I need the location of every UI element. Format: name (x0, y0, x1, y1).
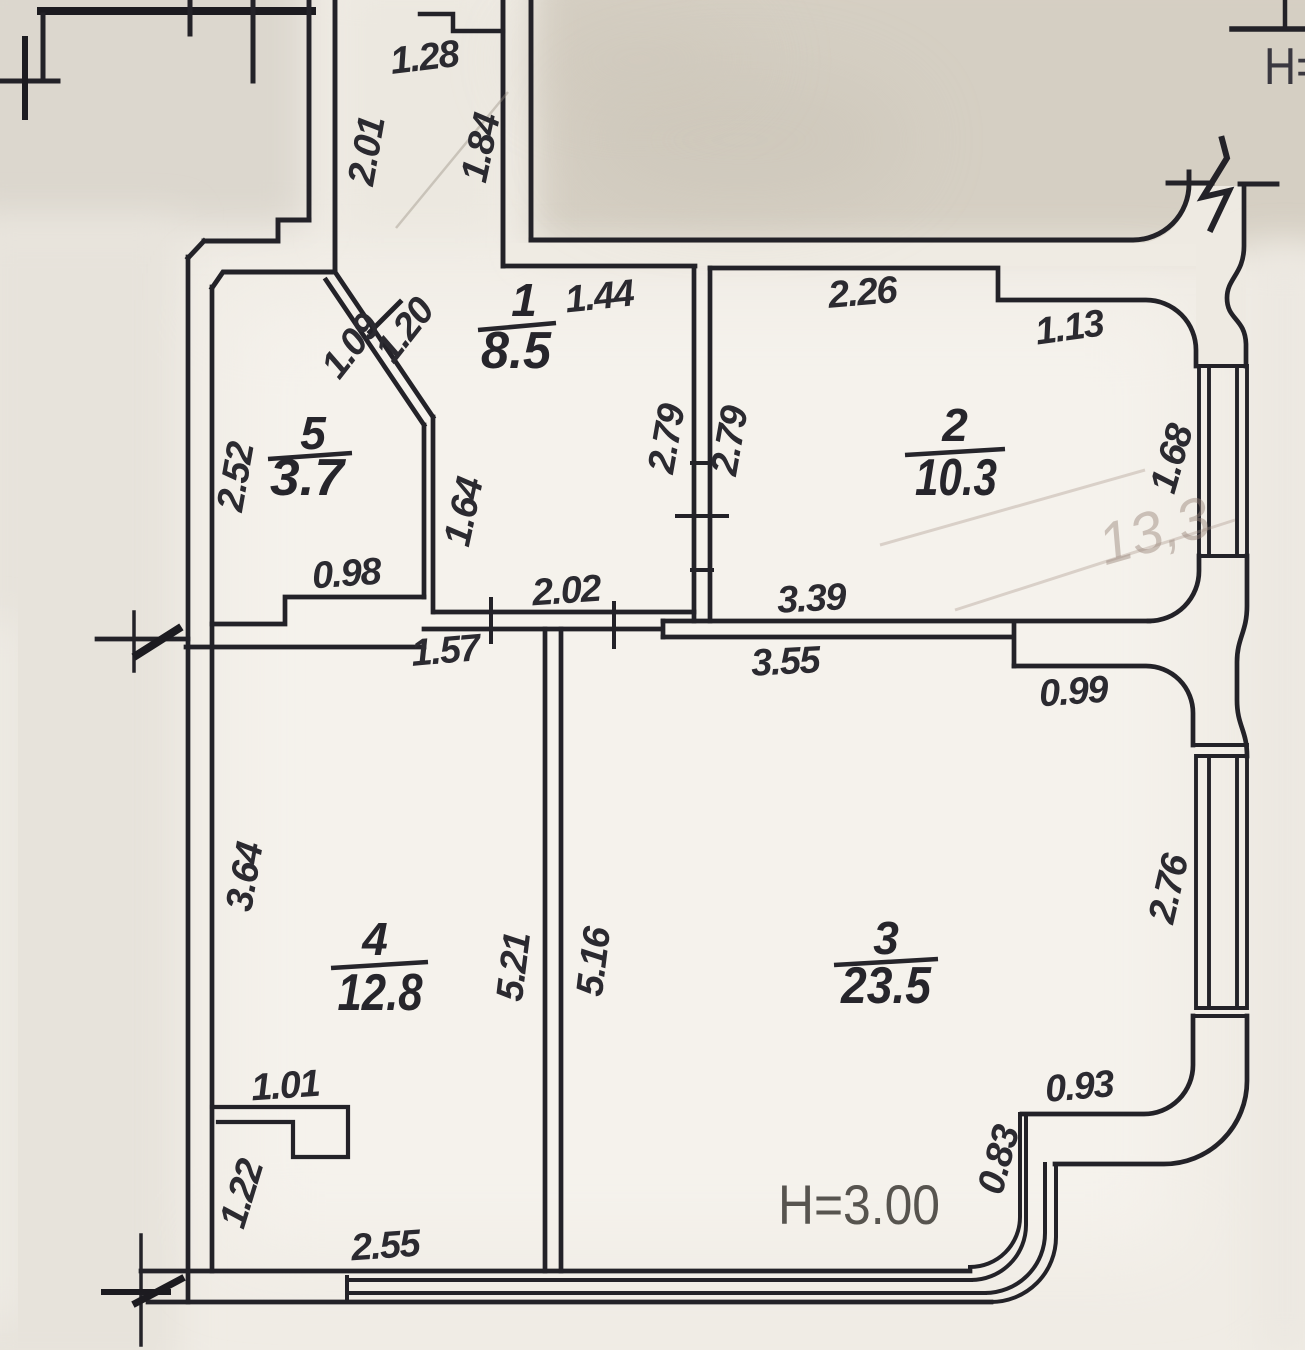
svg-text:2: 2 (941, 399, 968, 451)
svg-text:3.55: 3.55 (750, 639, 822, 685)
svg-text:2.26: 2.26 (825, 269, 900, 317)
svg-text:1.44: 1.44 (563, 272, 636, 321)
svg-text:2.55: 2.55 (349, 1223, 423, 1270)
svg-text:5.16: 5.16 (569, 923, 619, 998)
svg-text:0.98: 0.98 (311, 551, 384, 598)
svg-text:8.5: 8.5 (481, 322, 552, 380)
svg-text:4: 4 (361, 913, 388, 965)
svg-text:23.5: 23.5 (840, 957, 932, 1015)
svg-text:H=: H= (1264, 38, 1305, 96)
svg-text:10.3: 10.3 (915, 449, 997, 507)
svg-text:1.28: 1.28 (388, 33, 463, 83)
svg-text:0.99: 0.99 (1038, 669, 1110, 716)
svg-text:3.39: 3.39 (776, 576, 847, 622)
svg-text:0.93: 0.93 (1043, 1063, 1116, 1111)
svg-text:5.21: 5.21 (489, 930, 539, 1003)
svg-text:1: 1 (511, 274, 537, 326)
svg-text:12.8: 12.8 (338, 964, 423, 1022)
svg-text:3.7: 3.7 (270, 449, 346, 507)
svg-text:1.57: 1.57 (409, 627, 484, 675)
svg-text:1.01: 1.01 (250, 1063, 321, 1110)
svg-text:H=3.00: H=3.00 (778, 1173, 940, 1236)
svg-text:2.02: 2.02 (530, 568, 603, 615)
